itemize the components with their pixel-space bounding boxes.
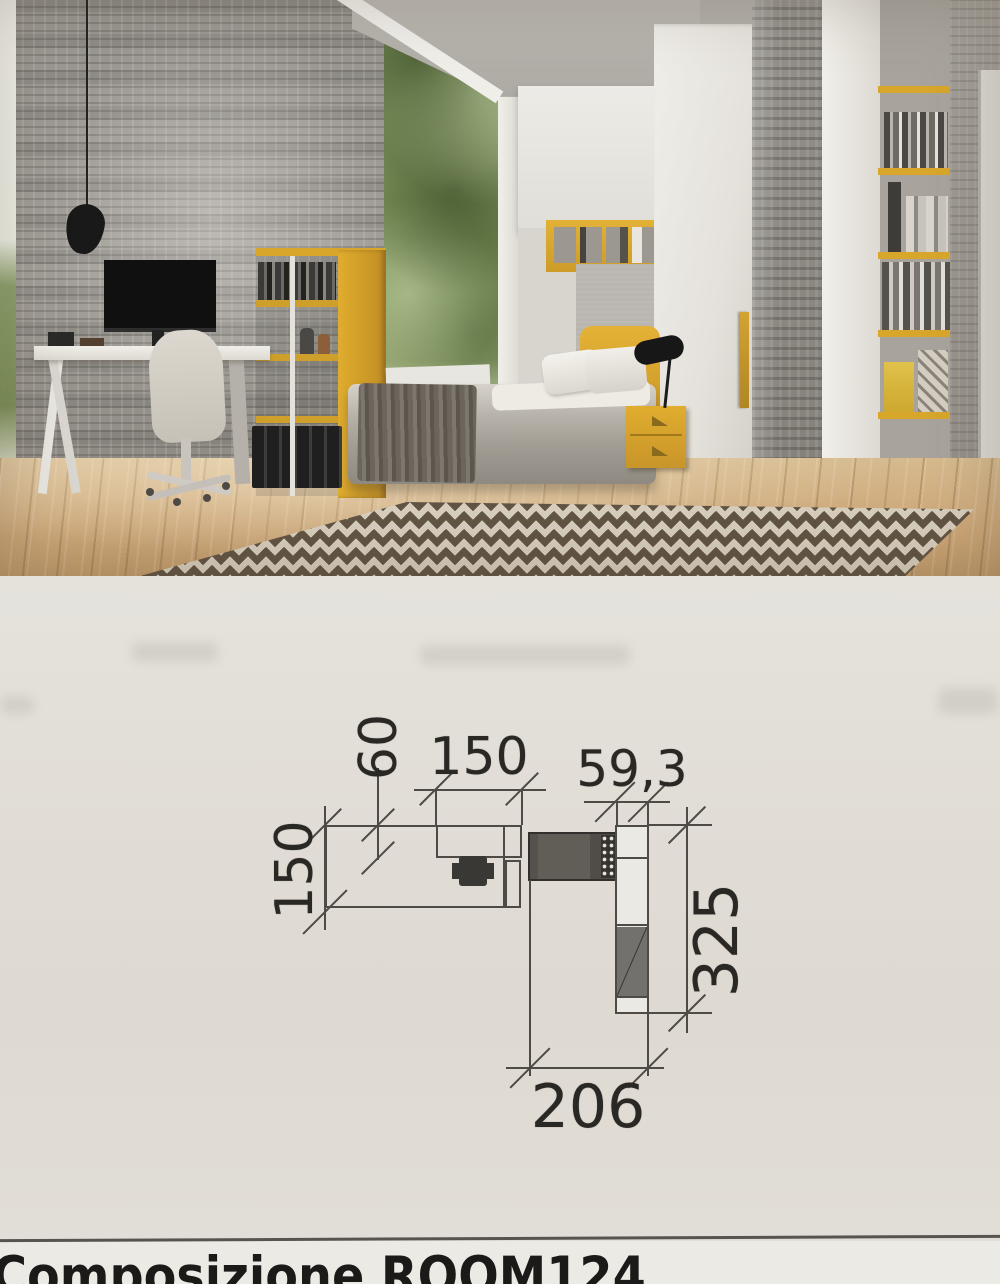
dim-label-150-top: 150 [429, 727, 528, 787]
shelf-board [878, 412, 954, 419]
extension-line [648, 824, 712, 826]
extension-line [435, 789, 437, 825]
drawer-divider [630, 434, 682, 436]
extension-line [521, 789, 523, 825]
plan-chair-armrest [486, 863, 494, 879]
plan-bed [528, 832, 619, 881]
office-chair-back [147, 328, 227, 444]
dim-line-59-3 [584, 801, 670, 803]
composition-title: Composizione ROOM124 [0, 1246, 892, 1284]
books-row [882, 262, 950, 330]
print-bleed-through [938, 688, 998, 714]
catalog-page: 60 150 59,3 150 325 206 Composizione ROO… [0, 0, 1000, 1284]
plan-side-panel-outline [505, 860, 521, 908]
chair-caster [173, 498, 181, 506]
obelisk-decor [888, 182, 901, 252]
plan-shelf-outline [436, 825, 522, 858]
plan-wardrobe-block [617, 927, 647, 996]
extension-line [647, 801, 649, 825]
print-bleed-through [132, 642, 218, 662]
office-chair-stem [181, 438, 191, 482]
window-edge-sliver [0, 0, 16, 520]
plan-chair-armrest [452, 863, 460, 879]
shelf-board [878, 86, 954, 93]
lamp-cord [86, 0, 88, 210]
extension-line [648, 1012, 712, 1014]
wardrobe-handle [740, 312, 749, 408]
shelf-books [632, 227, 654, 263]
plan-column-divider [615, 996, 649, 998]
vase-decor [318, 334, 330, 354]
print-bleed-through [0, 696, 34, 714]
monitor [104, 260, 216, 332]
chair-caster [203, 494, 211, 502]
dim-label-59-3: 59,3 [576, 740, 687, 798]
dim-label-150-left: 150 [265, 820, 325, 919]
door [978, 70, 1000, 510]
print-bleed-through [420, 645, 630, 665]
extension-line [616, 801, 618, 825]
brick-wall-strip [752, 0, 830, 490]
dim-label-60: 60 [349, 714, 409, 780]
shelf-board [256, 416, 338, 423]
bookshelf-right-side [822, 0, 882, 514]
pattern-box-decor [918, 350, 948, 412]
extension-line [529, 880, 531, 1076]
dim-label-206: 206 [531, 1072, 646, 1142]
dim-line-60 [377, 768, 379, 860]
room-photo [0, 0, 1000, 576]
nightstand [626, 406, 686, 468]
books-row [884, 112, 948, 168]
plan-chair [459, 856, 487, 886]
books-row [906, 196, 948, 252]
shelf-board [256, 300, 338, 307]
yellow-box-decor [884, 362, 914, 412]
drawer-handle [652, 446, 668, 456]
shelf-board [878, 330, 954, 337]
shelf-board [878, 168, 954, 175]
bookshelf-divider [290, 256, 295, 496]
chair-caster [146, 488, 154, 496]
chair-caster [222, 482, 230, 490]
dim-label-325: 325 [682, 883, 752, 998]
books-row [258, 262, 336, 300]
binders-row [252, 426, 342, 488]
vase-decor [300, 328, 314, 354]
shelf-books [580, 227, 602, 263]
plan-column-divider [615, 924, 649, 926]
throw-blanket [357, 383, 477, 483]
shelf-board [878, 252, 954, 259]
plan-bed-pillow [601, 835, 615, 878]
shelf-books [606, 227, 628, 263]
plan-column-divider [615, 857, 649, 859]
drawer-handle [652, 416, 668, 426]
shelf-opening [554, 227, 576, 263]
